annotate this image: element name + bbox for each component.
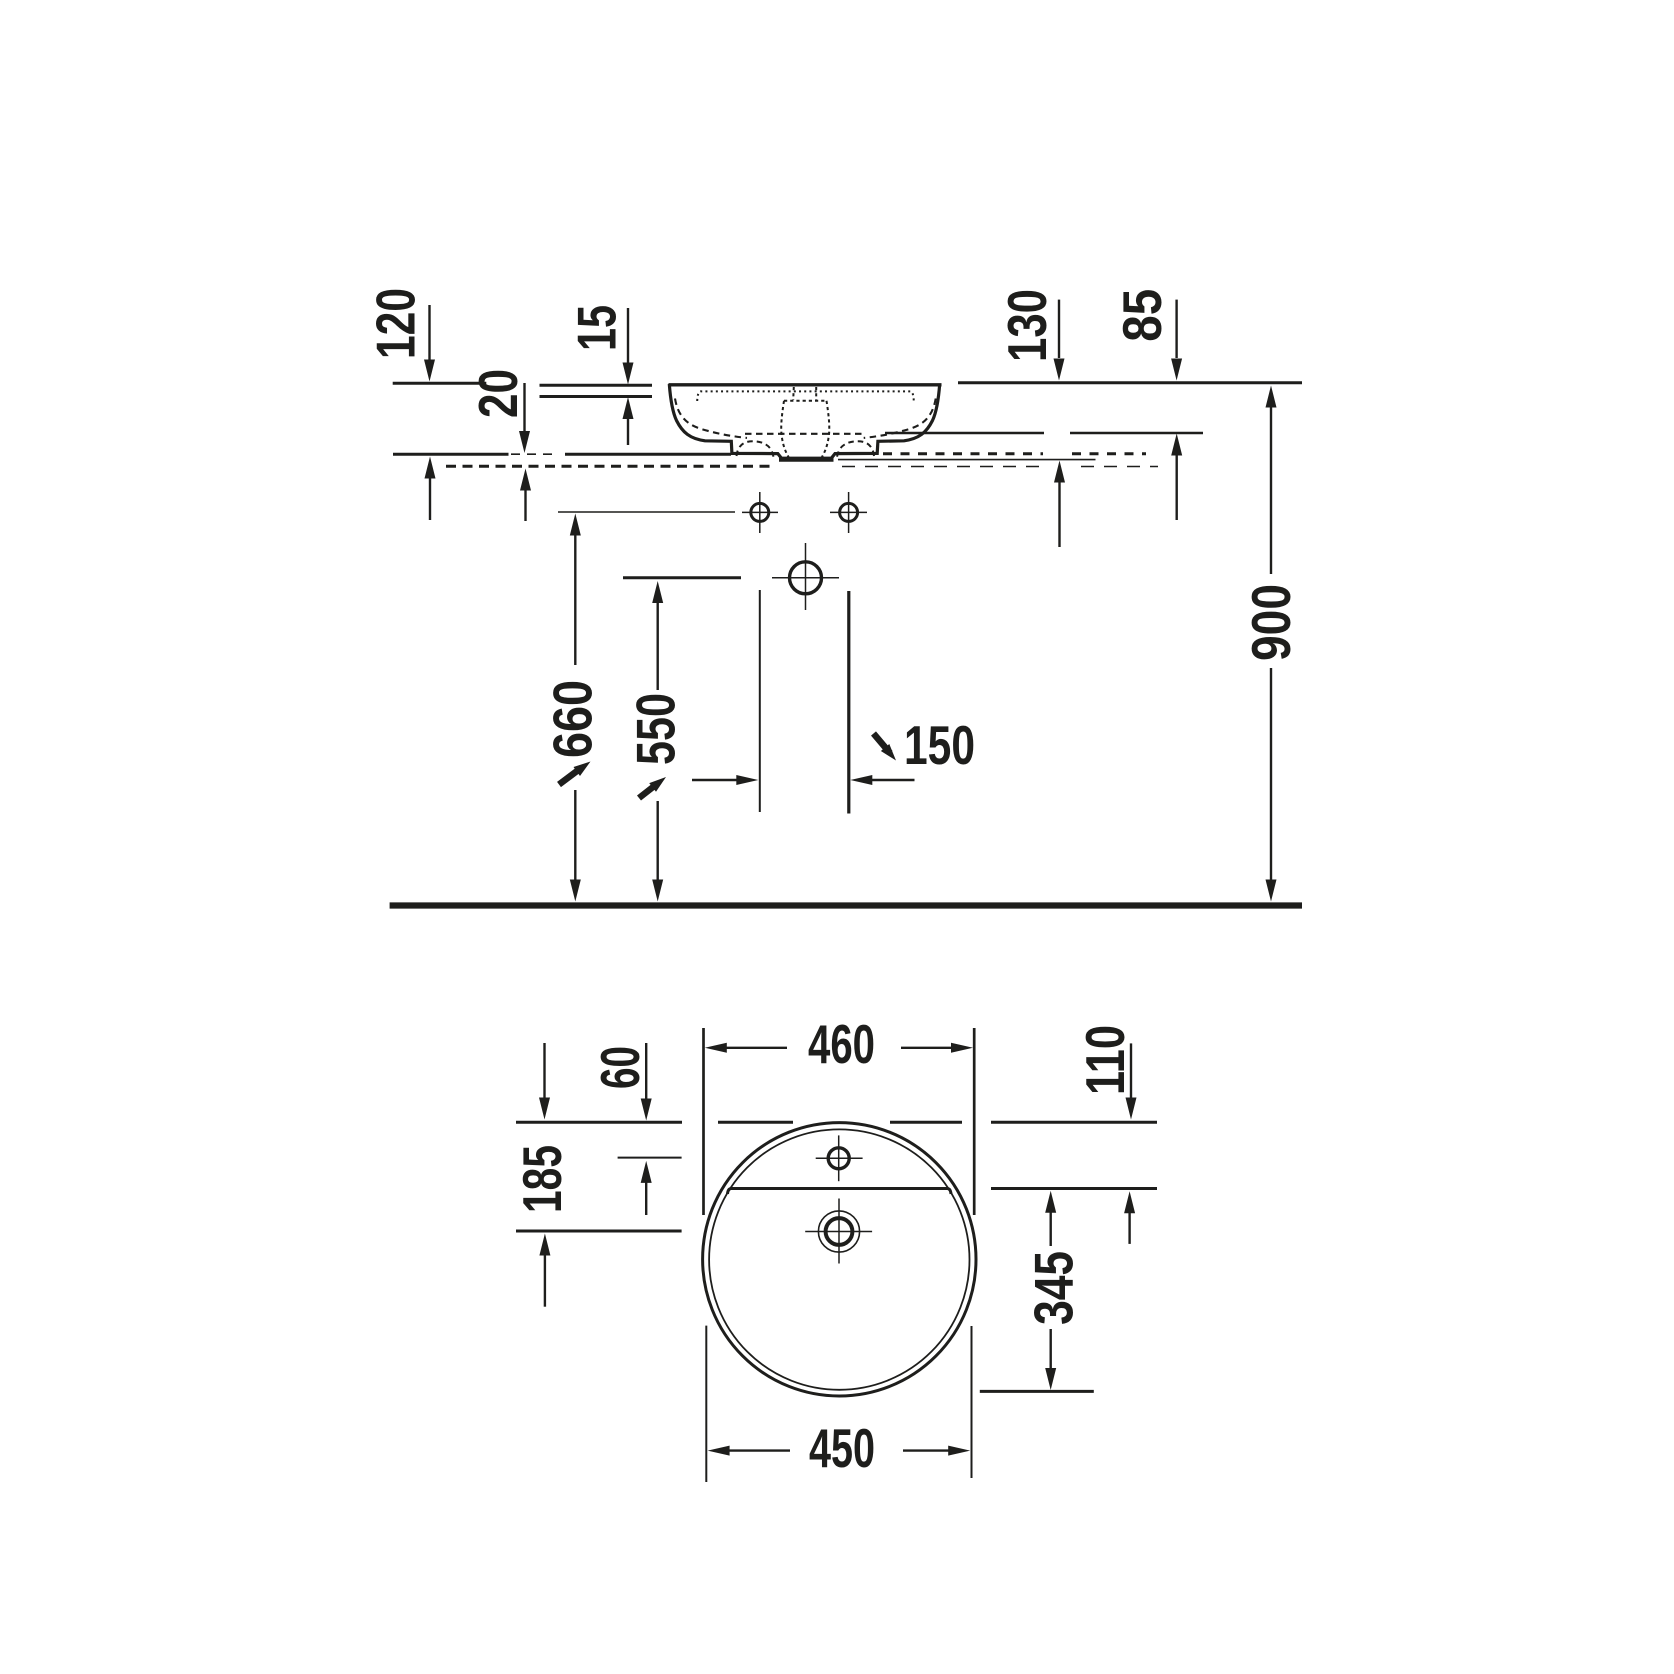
svg-text:550: 550 (625, 693, 687, 765)
svg-text:660: 660 (542, 680, 604, 758)
svg-text:120: 120 (365, 288, 427, 359)
svg-text:450: 450 (809, 1417, 875, 1479)
svg-text:460: 460 (808, 1013, 875, 1075)
svg-text:15: 15 (566, 305, 628, 351)
svg-text:185: 185 (511, 1145, 573, 1213)
svg-text:130: 130 (996, 289, 1058, 362)
svg-text:60: 60 (589, 1046, 651, 1089)
svg-text:20: 20 (467, 369, 529, 418)
svg-text:85: 85 (1111, 289, 1173, 342)
svg-text:150: 150 (904, 714, 975, 776)
svg-text:345: 345 (1022, 1251, 1084, 1325)
svg-text:110: 110 (1074, 1025, 1136, 1095)
svg-text:900: 900 (1240, 584, 1302, 661)
